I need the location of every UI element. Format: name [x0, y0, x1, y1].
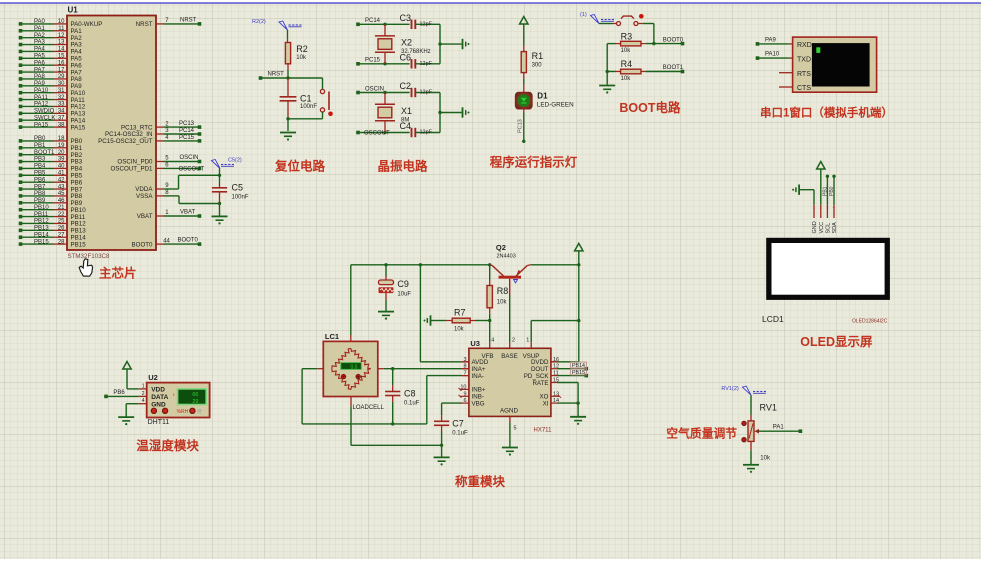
- svg-text:PB1: PB1: [34, 143, 46, 149]
- svg-text:LED-GREEN: LED-GREEN: [537, 102, 574, 109]
- svg-text:12pF: 12pF: [420, 61, 433, 67]
- svg-text:晶振电路: 晶振电路: [378, 159, 429, 174]
- svg-text:100nF: 100nF: [300, 104, 317, 110]
- svg-text:37: 37: [58, 115, 65, 121]
- svg-text:PB15: PB15: [572, 370, 585, 376]
- svg-text:16: 16: [58, 60, 65, 66]
- svg-text:OSCIN: OSCIN: [180, 155, 199, 161]
- svg-text:PB0: PB0: [829, 186, 835, 196]
- svg-text:10k: 10k: [296, 55, 307, 61]
- svg-text:OSCIN: OSCIN: [365, 86, 384, 92]
- svg-text:PA5: PA5: [34, 54, 46, 60]
- svg-text:RV1(2): RV1(2): [721, 386, 738, 392]
- svg-text:VBAT: VBAT: [180, 210, 196, 216]
- svg-text:SDA: SDA: [832, 222, 838, 234]
- svg-text:25: 25: [58, 219, 65, 225]
- svg-text:PB10: PB10: [34, 205, 49, 211]
- svg-text:PC15: PC15: [365, 58, 381, 64]
- svg-text:3: 3: [826, 206, 828, 210]
- svg-text:RV1: RV1: [760, 403, 777, 413]
- svg-text:BASE: BASE: [501, 353, 518, 360]
- svg-text:10: 10: [58, 19, 65, 25]
- svg-text:SWCLK: SWCLK: [34, 115, 55, 121]
- svg-text:PC13: PC13: [179, 121, 195, 127]
- svg-text:R8: R8: [497, 286, 509, 296]
- svg-text:17: 17: [58, 67, 65, 73]
- svg-text:X1: X1: [401, 106, 412, 116]
- svg-text:PB5: PB5: [34, 171, 46, 177]
- svg-text:PB9: PB9: [34, 198, 46, 204]
- svg-text:GND: GND: [812, 221, 818, 233]
- svg-text:41: 41: [58, 171, 65, 177]
- svg-text:R3: R3: [621, 32, 633, 42]
- svg-text:DATA: DATA: [151, 394, 168, 401]
- svg-text:PC15-OSC32_OUT: PC15-OSC32_OUT: [98, 138, 153, 145]
- svg-text:C9: C9: [397, 279, 409, 289]
- svg-text:0.1uF: 0.1uF: [404, 401, 420, 407]
- svg-text:19: 19: [58, 143, 65, 149]
- svg-text:300: 300: [532, 63, 543, 69]
- svg-text:10k: 10k: [621, 48, 632, 54]
- svg-text:39: 39: [58, 157, 65, 163]
- svg-text:BOOT0: BOOT0: [663, 37, 684, 43]
- svg-text:C1: C1: [300, 94, 312, 104]
- svg-text:C2: C2: [400, 81, 412, 91]
- svg-text:Q2: Q2: [496, 243, 506, 252]
- svg-text:空气质量调节: 空气质量调节: [666, 427, 737, 441]
- svg-text:BOOT1: BOOT1: [34, 150, 55, 156]
- svg-text:2: 2: [820, 206, 822, 210]
- svg-text:LC1: LC1: [325, 332, 339, 341]
- svg-text:RTS: RTS: [797, 71, 811, 78]
- svg-text:1: 1: [142, 383, 145, 389]
- svg-text:2N4403: 2N4403: [497, 254, 516, 260]
- svg-text:PA1: PA1: [34, 26, 46, 32]
- svg-text:C7: C7: [452, 419, 464, 429]
- svg-text:40: 40: [58, 164, 65, 170]
- svg-text:PB6: PB6: [113, 390, 125, 396]
- svg-text:%RH: %RH: [177, 409, 189, 415]
- svg-text:(1): (1): [580, 12, 587, 18]
- svg-text:PC14: PC14: [365, 18, 381, 24]
- svg-text:C3: C3: [400, 13, 412, 23]
- svg-text:46: 46: [58, 198, 65, 204]
- svg-text:5: 5: [514, 426, 517, 432]
- svg-text:C5(2): C5(2): [228, 158, 242, 164]
- svg-text:称重模块: 称重模块: [455, 474, 506, 489]
- svg-text:U2: U2: [148, 373, 158, 382]
- svg-text:NRST: NRST: [268, 72, 285, 78]
- svg-text:PA11: PA11: [34, 95, 48, 101]
- svg-text:32: 32: [58, 95, 65, 101]
- svg-text:22: 22: [58, 212, 65, 218]
- svg-text:12pF: 12pF: [420, 130, 433, 136]
- svg-text:温湿度模块: 温湿度模块: [136, 438, 199, 453]
- svg-text:SWDIO: SWDIO: [34, 109, 55, 115]
- svg-text:PA10: PA10: [765, 52, 780, 58]
- svg-text:度: 度: [197, 407, 202, 415]
- svg-text:D1: D1: [537, 92, 548, 101]
- svg-text:32.768KHz: 32.768KHz: [401, 49, 431, 55]
- svg-text:10k: 10k: [454, 327, 465, 333]
- svg-text:PA10: PA10: [34, 88, 49, 94]
- svg-text:VBAT: VBAT: [137, 213, 153, 220]
- svg-text:21: 21: [58, 205, 65, 211]
- svg-text:STM32F103C8: STM32F103C8: [68, 253, 111, 260]
- svg-text:10k: 10k: [760, 456, 771, 462]
- svg-text:2: 2: [512, 338, 515, 344]
- svg-text:0.0: 0.0: [351, 364, 358, 370]
- svg-text:10k: 10k: [621, 76, 632, 82]
- svg-text:66: 66: [192, 392, 198, 398]
- svg-text:R2: R2: [296, 44, 308, 54]
- svg-text:12: 12: [58, 33, 65, 39]
- svg-text:LOADCELL: LOADCELL: [353, 405, 385, 411]
- svg-text:8M: 8M: [401, 118, 409, 124]
- svg-text:VSSA: VSSA: [136, 193, 153, 200]
- svg-text:30: 30: [58, 81, 65, 87]
- svg-text:20: 20: [58, 150, 65, 156]
- svg-text:33: 33: [58, 102, 65, 108]
- svg-text:PC14: PC14: [179, 128, 195, 134]
- svg-text:TXD: TXD: [797, 56, 811, 63]
- svg-text:1: 1: [813, 206, 815, 210]
- svg-text:R2(2): R2(2): [252, 19, 266, 25]
- svg-text:PC15: PC15: [179, 135, 195, 141]
- svg-text:PA8: PA8: [34, 74, 46, 80]
- svg-text:PB8: PB8: [34, 191, 46, 197]
- svg-text:28: 28: [58, 239, 65, 245]
- svg-text:10uF: 10uF: [397, 292, 411, 298]
- svg-text:OLED显示屏: OLED显示屏: [800, 335, 873, 349]
- svg-text:PA0: PA0: [34, 19, 46, 25]
- svg-text:4: 4: [491, 338, 494, 344]
- svg-text:PB14: PB14: [572, 363, 585, 369]
- svg-text:13: 13: [58, 40, 65, 46]
- svg-text:PB6: PB6: [34, 177, 46, 183]
- svg-text:PA15: PA15: [71, 124, 86, 131]
- svg-text:VDD: VDD: [151, 387, 165, 394]
- svg-text:PB14: PB14: [34, 232, 49, 238]
- svg-text:0.1uF: 0.1uF: [452, 431, 468, 437]
- svg-text:1: 1: [526, 338, 529, 344]
- svg-text:U1: U1: [68, 6, 79, 15]
- svg-text:R7: R7: [454, 307, 466, 317]
- svg-text:X2: X2: [401, 38, 412, 48]
- svg-text:PB11: PB11: [34, 212, 49, 218]
- svg-text:42: 42: [58, 177, 65, 183]
- svg-text:PA7: PA7: [34, 67, 46, 73]
- svg-text:C5: C5: [232, 183, 244, 193]
- svg-text:PA2: PA2: [34, 33, 46, 39]
- svg-text:CTS: CTS: [797, 85, 811, 92]
- svg-text:GND: GND: [151, 402, 166, 409]
- svg-text:OSCOUT: OSCOUT: [179, 166, 205, 172]
- svg-text:NRST: NRST: [180, 17, 197, 23]
- svg-text:R1: R1: [532, 51, 544, 61]
- svg-text:PA4: PA4: [34, 47, 46, 53]
- svg-text:PB4: PB4: [34, 164, 46, 170]
- svg-text:OSCOUT: OSCOUT: [364, 131, 390, 137]
- svg-text:PA6: PA6: [34, 60, 46, 66]
- svg-text:HX711: HX711: [534, 428, 553, 434]
- svg-text:27: 27: [58, 232, 65, 238]
- svg-text:RXD: RXD: [797, 42, 812, 49]
- svg-text:BOOT0: BOOT0: [132, 241, 154, 248]
- svg-text:10k: 10k: [497, 300, 508, 306]
- svg-text:18: 18: [58, 136, 65, 142]
- svg-text:R4: R4: [621, 59, 633, 69]
- svg-text:PB15: PB15: [71, 241, 87, 248]
- svg-text:BOOT0: BOOT0: [178, 238, 199, 244]
- svg-text:PB13: PB13: [34, 226, 49, 232]
- svg-text:PA15: PA15: [34, 122, 49, 128]
- svg-text:43: 43: [58, 184, 65, 190]
- svg-text:PA9: PA9: [34, 81, 46, 87]
- svg-text:PC13: PC13: [518, 119, 524, 133]
- svg-text:29: 29: [192, 399, 198, 405]
- svg-text:PB3: PB3: [34, 157, 46, 163]
- svg-text:2: 2: [142, 391, 145, 397]
- svg-text:BOOT电路: BOOT电路: [619, 100, 681, 115]
- svg-text:LCD1: LCD1: [762, 314, 784, 324]
- svg-text:INA-: INA-: [472, 373, 484, 380]
- svg-text:复位电路: 复位电路: [274, 159, 326, 174]
- svg-text:PA3: PA3: [34, 40, 46, 46]
- svg-text:PB12: PB12: [34, 219, 49, 225]
- svg-text:OSCOUT_PD1: OSCOUT_PD1: [111, 166, 154, 173]
- svg-text:4: 4: [833, 206, 835, 210]
- svg-text:PB15: PB15: [34, 239, 49, 245]
- svg-text:C8: C8: [404, 389, 416, 399]
- svg-text:SCL: SCL: [825, 223, 831, 234]
- svg-text:PA9: PA9: [765, 37, 777, 43]
- svg-text:OLED12864I2C: OLED12864I2C: [852, 319, 888, 325]
- svg-text:PA12: PA12: [34, 102, 49, 108]
- svg-text:›: ›: [173, 392, 175, 398]
- svg-text:程序运行指示灯: 程序运行指示灯: [490, 155, 578, 170]
- svg-text:VCC: VCC: [819, 222, 825, 234]
- svg-text:100nF: 100nF: [232, 195, 249, 201]
- svg-text:DHT11: DHT11: [148, 419, 170, 426]
- svg-text:4: 4: [142, 398, 145, 404]
- svg-text:11: 11: [58, 26, 65, 32]
- svg-text:串口1窗口（模拟手机端）: 串口1窗口（模拟手机端）: [760, 106, 893, 120]
- svg-text:15: 15: [58, 54, 65, 60]
- svg-text:31: 31: [58, 88, 65, 94]
- svg-text:PB7: PB7: [34, 184, 46, 190]
- svg-text:主芯片: 主芯片: [99, 266, 137, 281]
- svg-text:RATE: RATE: [532, 380, 548, 387]
- svg-text:38: 38: [58, 122, 65, 128]
- svg-text:BOOT1: BOOT1: [663, 65, 684, 71]
- svg-text:AGND: AGND: [500, 408, 518, 415]
- svg-text:14: 14: [58, 47, 65, 53]
- svg-text:PB1: PB1: [822, 186, 828, 196]
- svg-text:26: 26: [58, 226, 65, 232]
- svg-text:29: 29: [58, 74, 65, 80]
- svg-text:PB0: PB0: [34, 136, 46, 142]
- svg-text:12pF: 12pF: [420, 21, 433, 27]
- svg-text:PA1: PA1: [773, 425, 785, 431]
- svg-text:12pF: 12pF: [420, 90, 433, 96]
- svg-text:NRST: NRST: [136, 21, 153, 28]
- svg-text:XI: XI: [543, 400, 549, 407]
- svg-text:VBG: VBG: [472, 400, 485, 407]
- svg-text:45: 45: [58, 191, 65, 197]
- svg-text:U3: U3: [470, 339, 480, 348]
- svg-text:34: 34: [58, 109, 65, 115]
